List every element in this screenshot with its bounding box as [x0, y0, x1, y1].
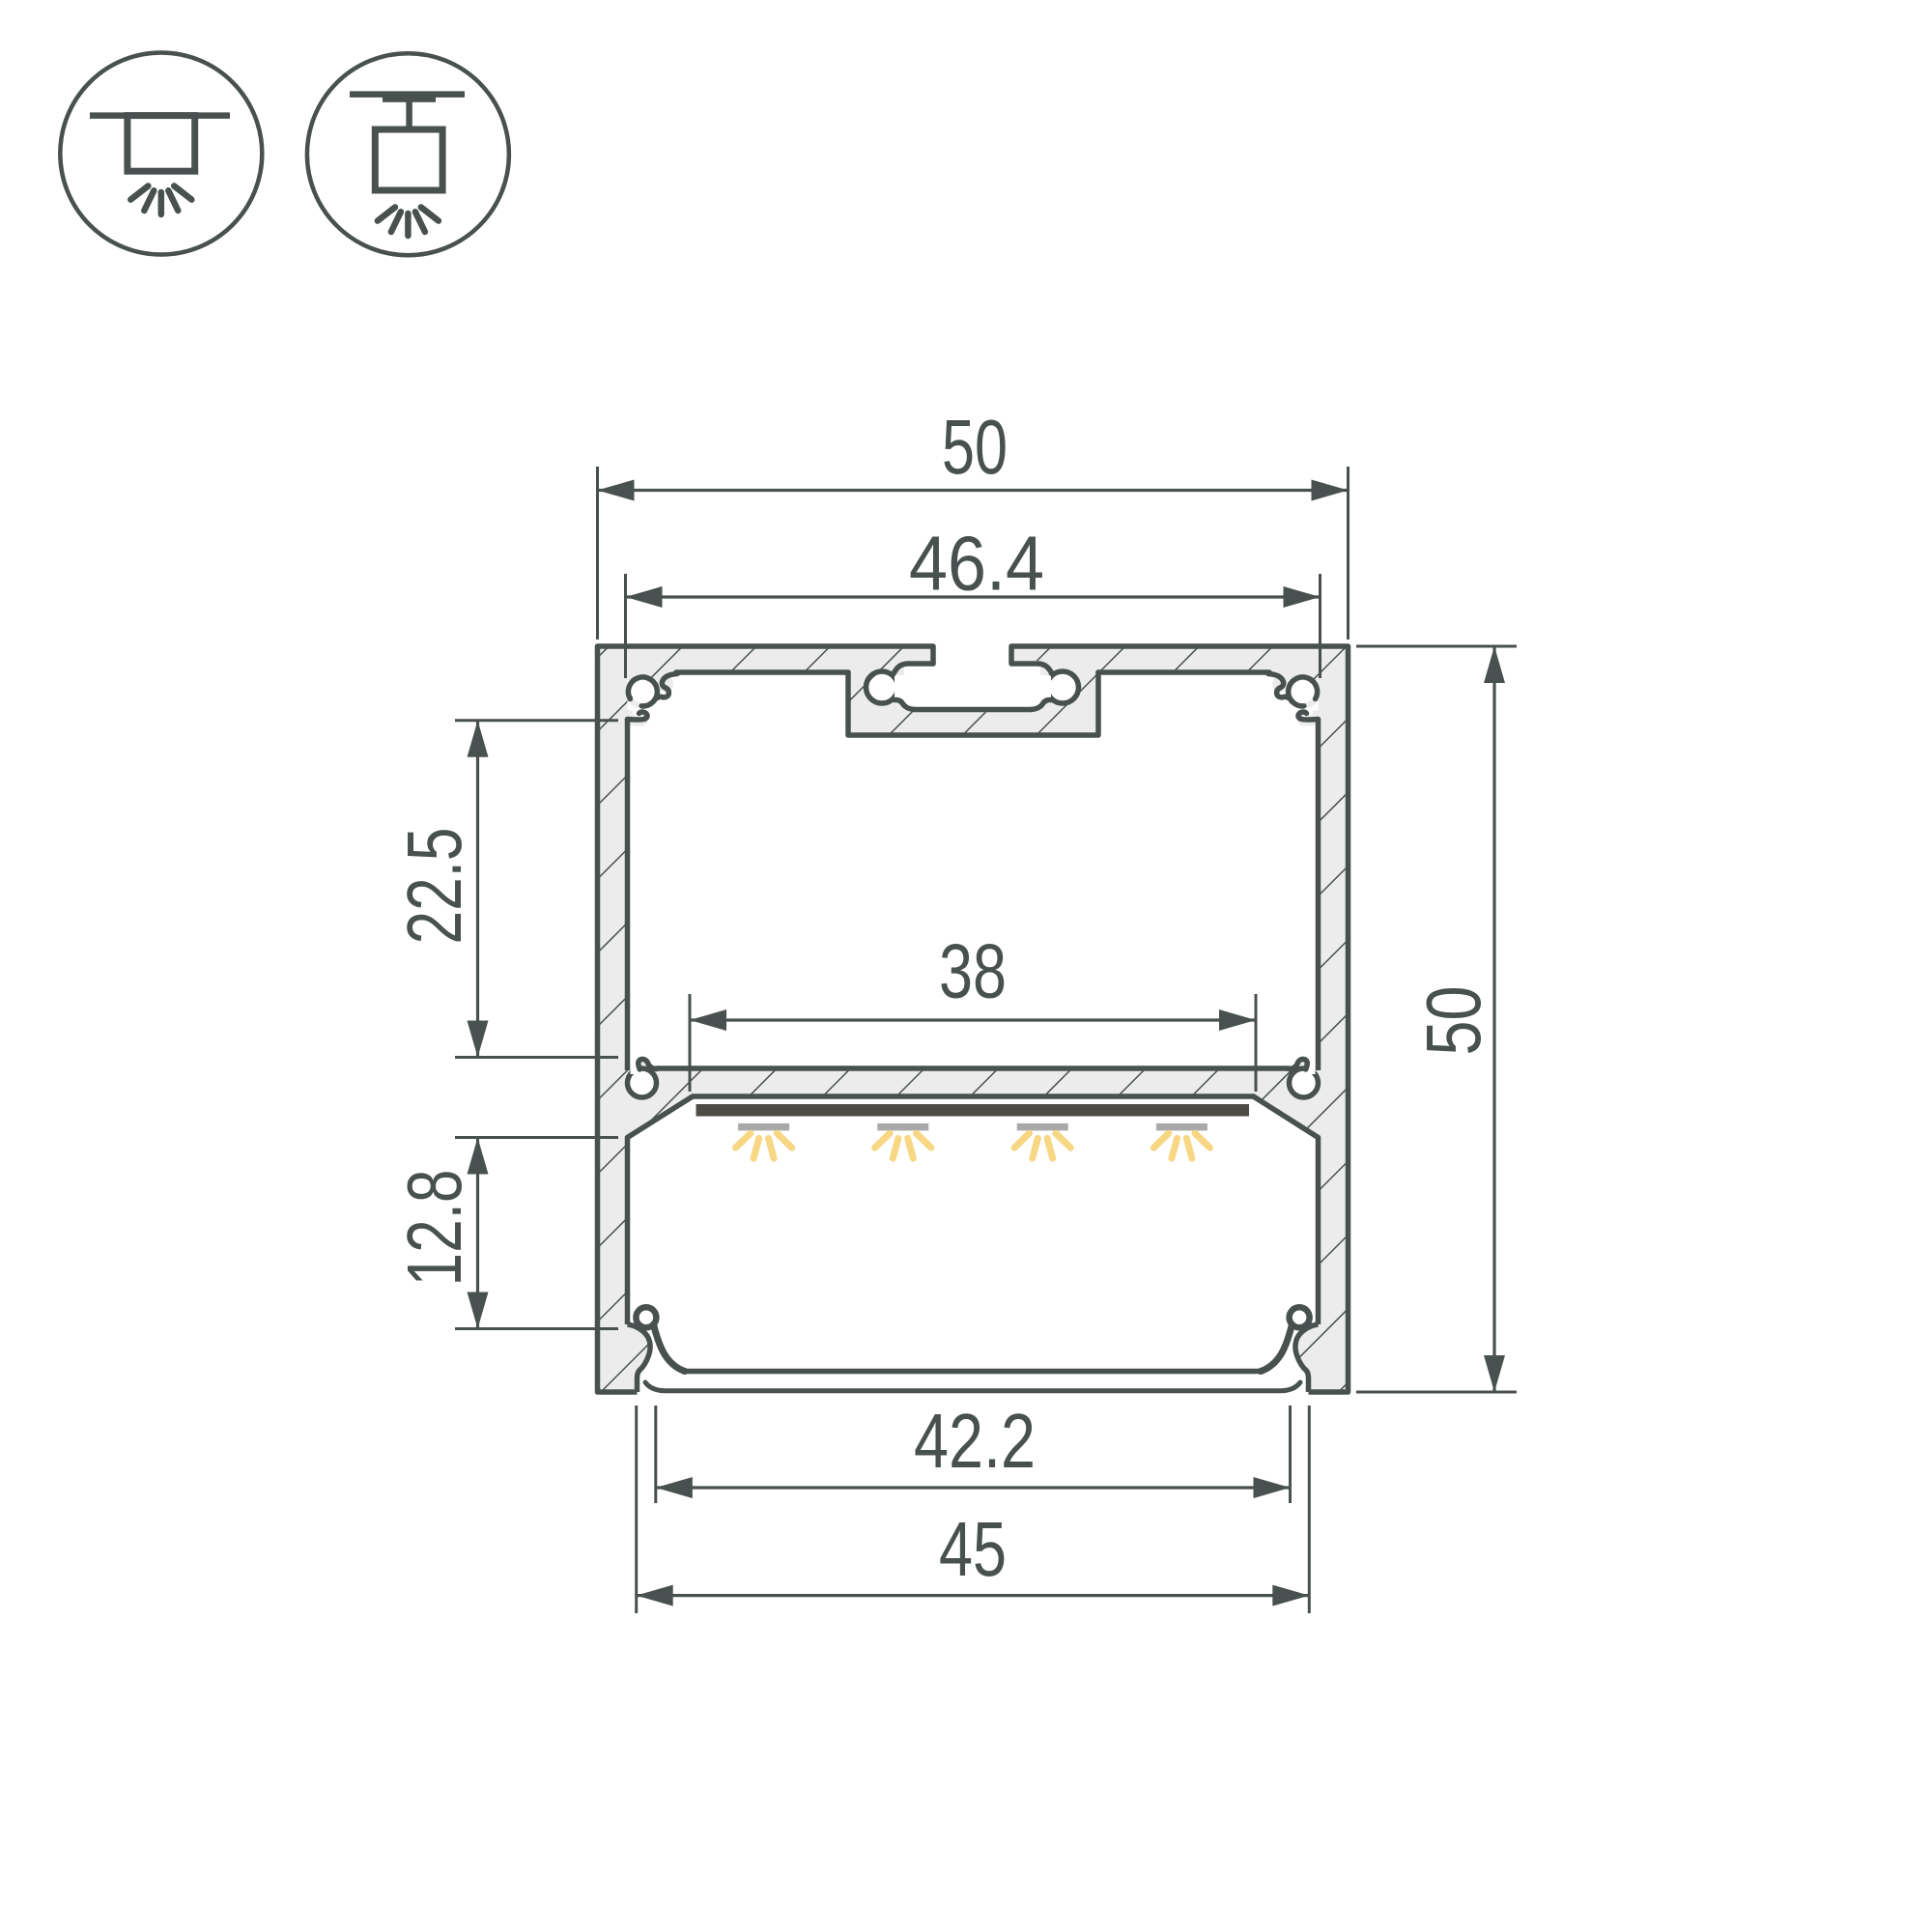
svg-text:12.8: 12.8	[391, 1170, 477, 1287]
svg-text:45: 45	[939, 1506, 1007, 1592]
svg-text:46.4: 46.4	[909, 521, 1044, 607]
svg-text:50: 50	[942, 404, 1008, 490]
svg-text:22.5: 22.5	[391, 828, 477, 945]
svg-text:50: 50	[1410, 986, 1496, 1056]
svg-text:42.2: 42.2	[914, 1398, 1036, 1484]
svg-text:38: 38	[939, 928, 1007, 1014]
